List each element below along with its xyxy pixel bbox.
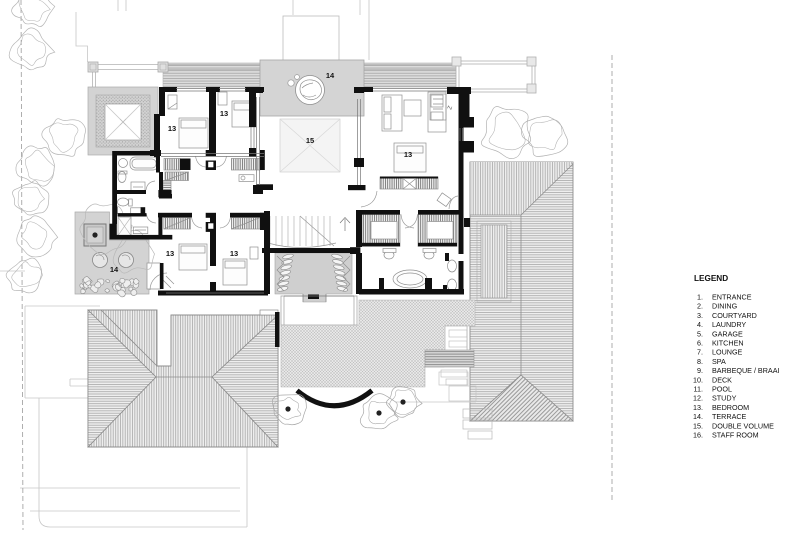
svg-text:DINING: DINING <box>712 302 738 311</box>
svg-text:DOUBLE VOLUME: DOUBLE VOLUME <box>712 421 774 430</box>
svg-text:5.: 5. <box>697 329 703 338</box>
svg-text:2.: 2. <box>697 302 703 311</box>
svg-text:SPA: SPA <box>712 357 726 366</box>
svg-text:13: 13 <box>230 249 238 258</box>
svg-text:LEGEND: LEGEND <box>694 274 728 283</box>
svg-text:ENTRANCE: ENTRANCE <box>712 293 752 302</box>
svg-text:POOL: POOL <box>712 385 732 394</box>
svg-text:4.: 4. <box>697 320 703 329</box>
svg-text:BARBEQUE / BRAAI: BARBEQUE / BRAAI <box>712 366 780 375</box>
svg-text:7.: 7. <box>697 348 703 357</box>
svg-text:14: 14 <box>110 265 119 274</box>
svg-text:14: 14 <box>326 71 335 80</box>
svg-text:LOUNGE: LOUNGE <box>712 348 743 357</box>
svg-text:DECK: DECK <box>712 375 732 384</box>
svg-text:8.: 8. <box>697 357 703 366</box>
svg-text:13: 13 <box>220 109 228 118</box>
svg-text:16.: 16. <box>693 431 703 440</box>
svg-text:10.: 10. <box>693 375 703 384</box>
svg-text:TERRACE: TERRACE <box>712 412 747 421</box>
svg-text:6.: 6. <box>697 339 703 348</box>
svg-text:LAUNDRY: LAUNDRY <box>712 320 746 329</box>
svg-text:BEDROOM: BEDROOM <box>712 403 749 412</box>
svg-text:13: 13 <box>168 124 176 133</box>
svg-text:12.: 12. <box>693 394 703 403</box>
svg-text:15.: 15. <box>693 421 703 430</box>
svg-text:STUDY: STUDY <box>712 394 737 403</box>
svg-text:COURTYARD: COURTYARD <box>712 311 757 320</box>
svg-text:11.: 11. <box>694 385 703 394</box>
svg-text:9.: 9. <box>697 366 703 375</box>
svg-text:13: 13 <box>404 150 412 159</box>
svg-text:GARAGE: GARAGE <box>712 329 743 338</box>
svg-text:14.: 14. <box>693 412 703 421</box>
svg-text:3.: 3. <box>697 311 703 320</box>
svg-text:STAFF ROOM: STAFF ROOM <box>712 431 759 440</box>
svg-text:1.: 1. <box>697 293 703 302</box>
svg-text:13.: 13. <box>693 403 703 412</box>
svg-text:15: 15 <box>306 136 314 145</box>
svg-text:13: 13 <box>166 249 174 258</box>
svg-text:KITCHEN: KITCHEN <box>712 339 744 348</box>
